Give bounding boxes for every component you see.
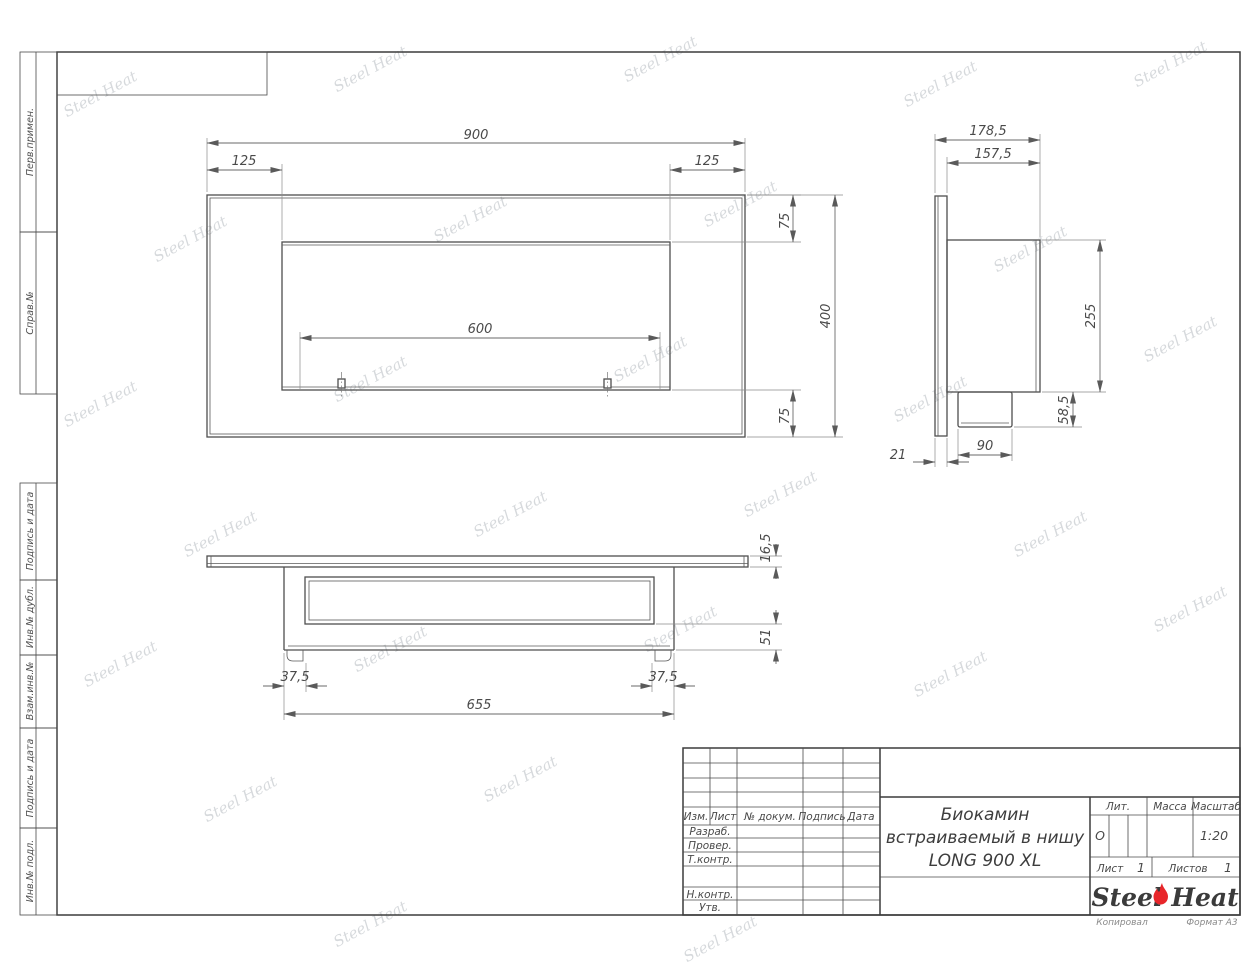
dim-side-burner-height: 58,5	[1057, 396, 1072, 425]
stamp-label-podpis-data-1: Подпись и дата	[25, 491, 36, 570]
side-flange-plate	[935, 196, 947, 436]
bottom-dimensions: 16,5 51 37,5 37,5	[263, 534, 782, 720]
side-view: 178,5 157,5 255 58,5 90	[890, 124, 1106, 467]
side-body	[947, 240, 1040, 392]
bottom-flange-strip	[207, 556, 748, 567]
tb-scale-label: Масштаб	[1191, 801, 1241, 813]
front-view: 900 125 125 75 400	[207, 128, 843, 437]
drawing-canvas: Перв.примен. Справ.№ Подпись и дата Инв.…	[0, 0, 1255, 970]
doc-title-line-3: LONG 900 XL	[929, 851, 1042, 871]
tb-scale-value: 1:20	[1200, 828, 1228, 843]
drawing-sheet: Steel Heat Steel Heat Steel Heat Steel H…	[0, 0, 1255, 970]
dim-side-body-depth: 157,5	[974, 147, 1011, 162]
stamp-label-sprav-no: Справ.№	[25, 291, 36, 334]
left-stamps: Перв.примен. Справ.№ Подпись и дата Инв.…	[20, 52, 57, 915]
dim-front-inset-left: 125	[232, 154, 257, 169]
dim-side-burner-width: 90	[977, 439, 994, 454]
tb-col-list: Лист	[709, 811, 737, 823]
tb-sheet-label: Лист	[1096, 863, 1124, 875]
dim-front-inset-right: 125	[695, 154, 720, 169]
dim-side-body-height: 255	[1084, 304, 1099, 329]
tb-mass-label: Масса	[1153, 801, 1186, 813]
side-burner-block	[958, 392, 1012, 427]
dim-bottom-body-width: 655	[467, 698, 492, 713]
stamp-label-inv-dubl: Инв.№ дубл.	[25, 586, 36, 648]
stamp-label-inv-podl: Инв.№ подл.	[25, 840, 36, 903]
dim-side-overall-depth: 178,5	[969, 124, 1006, 139]
dim-bottom-foot-inset-left: 37,5	[281, 670, 310, 685]
front-outer-plate	[207, 195, 745, 437]
tb-lit-label: Лит.	[1105, 801, 1130, 813]
corner-stamp-box	[57, 52, 267, 95]
dim-front-top-margin: 75	[778, 213, 793, 230]
tb-row-utv: Утв.	[699, 902, 721, 914]
tb-col-ndocum: № докум.	[743, 811, 796, 823]
doc-title-line-1: Биокамин	[941, 805, 1030, 825]
tb-col-data: Дата	[846, 811, 874, 823]
tb-col-izm: Изм.	[684, 811, 709, 823]
stamp-label-podpis-data-2: Подпись и дата	[25, 738, 36, 817]
bottom-foot-right	[655, 650, 671, 661]
dim-bottom-foot-inset-right: 37,5	[649, 670, 678, 685]
dim-front-overall-width: 900	[464, 128, 489, 143]
front-opening	[282, 242, 670, 390]
logo-text-steel: Steel	[1092, 883, 1163, 912]
doc-title-line-2: встраиваемый в нишу	[886, 828, 1085, 848]
copied-label: Копировал	[1096, 918, 1148, 928]
side-dimensions: 178,5 157,5 255 58,5 90	[890, 124, 1106, 467]
tb-sheet-number: 1	[1137, 860, 1145, 875]
stamp-label-vzam-inv: Взам.инв.№	[25, 662, 36, 721]
tb-row-tkontr: Т.контр.	[687, 854, 733, 866]
bottom-foot-left	[287, 650, 303, 661]
tb-sheets-total: 1	[1224, 860, 1232, 875]
front-plate-inner-edge	[210, 198, 742, 434]
bottom-inner-frame	[305, 577, 654, 624]
bottom-view: 16,5 51 37,5 37,5	[207, 534, 782, 720]
stamp-label-perv-primen: Перв.примен.	[25, 108, 36, 176]
dim-front-burner-length: 600	[468, 322, 493, 337]
dim-front-overall-height: 400	[819, 304, 834, 329]
dim-bottom-inner-depth: 51	[759, 629, 774, 646]
tb-row-razrab: Разраб.	[689, 826, 730, 838]
format-label: Формат А3	[1186, 918, 1238, 928]
logo-text-heat: Heat	[1170, 883, 1239, 912]
dim-side-flange-thickness: 21	[890, 448, 907, 463]
dim-bottom-flange-thickness: 16,5	[759, 534, 774, 563]
tb-lit-value: О	[1095, 828, 1105, 843]
tb-col-podpis: Подпись	[798, 811, 845, 823]
tb-row-nkontr: Н.контр.	[687, 889, 734, 901]
tb-row-prover: Провер.	[688, 840, 732, 852]
steelheat-logo: Steel Heat	[1092, 883, 1240, 912]
title-block: Изм. Лист № докум. Подпись Дата Разраб. …	[683, 748, 1241, 915]
sheet-frame	[57, 52, 1240, 915]
frame-border	[57, 52, 1240, 915]
tb-sheets-label: Листов	[1167, 863, 1207, 875]
dim-front-bottom-margin: 75	[778, 408, 793, 425]
